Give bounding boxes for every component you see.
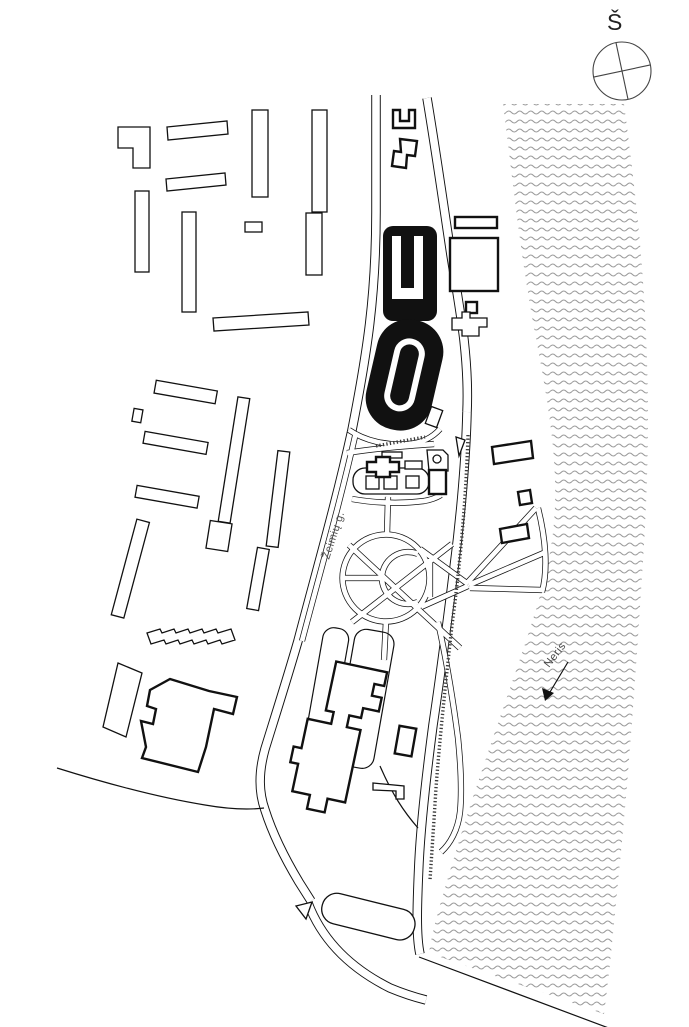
north-label: Š [607, 8, 622, 35]
building-outline [135, 191, 149, 272]
building-sawtooth [147, 629, 235, 644]
building-outline [455, 217, 497, 228]
corner-road-curve [57, 768, 264, 809]
annex-building [395, 726, 417, 757]
building-outline [247, 547, 270, 610]
north-compass: Š [588, 8, 657, 105]
building-outline [266, 451, 290, 548]
building-outline [218, 397, 250, 523]
building-outline [132, 408, 143, 422]
parking-pill [319, 890, 419, 943]
palace-building [282, 657, 388, 820]
building-outline [312, 110, 327, 212]
building-outline [135, 485, 199, 508]
site-plan-map: Neris [0, 0, 689, 1027]
building-outline [245, 222, 262, 232]
cluster-bar [405, 461, 422, 469]
tank-circle [433, 455, 441, 463]
sports-hall-black [383, 226, 437, 321]
building-outline [143, 431, 208, 454]
building-outline [252, 110, 268, 197]
building-outline [166, 173, 226, 191]
cluster-hut [406, 476, 419, 488]
building-large-stepped [141, 679, 237, 772]
building-outline [154, 380, 217, 404]
compass-cross [588, 37, 657, 106]
building-outline [206, 520, 232, 551]
building-outline [392, 139, 417, 168]
building-outline [103, 663, 142, 737]
building-outline [450, 238, 498, 291]
building-outline [167, 121, 228, 140]
building-outline [182, 212, 196, 312]
cluster-building [429, 470, 446, 494]
terrace-structure [373, 783, 404, 799]
building-outline [492, 441, 533, 464]
building-outline [213, 312, 309, 331]
building-outline [111, 519, 149, 618]
building-outline [393, 110, 415, 128]
building-outline [518, 490, 532, 505]
building-outline [306, 213, 322, 275]
site-plan-page: Neris [0, 0, 689, 1027]
building-outline [118, 127, 150, 168]
building-outline [500, 524, 529, 543]
